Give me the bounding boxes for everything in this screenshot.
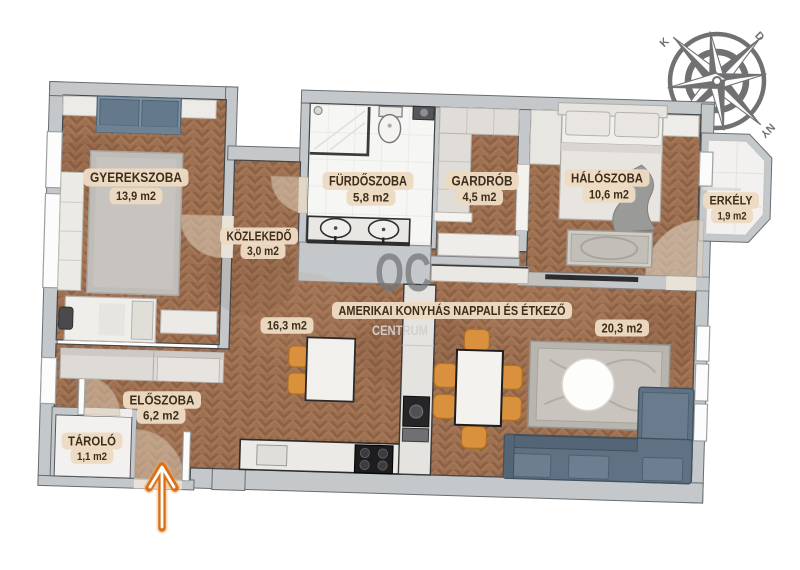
svg-text:OC: OC: [375, 243, 431, 303]
svg-text:13,9 m2: 13,9 m2: [116, 189, 156, 203]
svg-text:20,3 m2: 20,3 m2: [602, 321, 643, 335]
svg-text:ELŐSZOBA: ELŐSZOBA: [130, 393, 196, 408]
svg-text:3,0 m2: 3,0 m2: [247, 246, 279, 258]
svg-text:HÁLÓSZOBA: HÁLÓSZOBA: [571, 171, 644, 186]
svg-text:TÁROLÓ: TÁROLÓ: [68, 433, 116, 448]
svg-text:KÖZLEKEDŐ: KÖZLEKEDŐ: [227, 228, 292, 243]
svg-text:5,8 m2: 5,8 m2: [353, 191, 389, 205]
svg-text:ERKÉLY: ERKÉLY: [710, 193, 753, 208]
svg-text:10,6 m2: 10,6 m2: [589, 188, 629, 202]
svg-text:GYEREKSZOBA: GYEREKSZOBA: [90, 170, 182, 185]
svg-text:CENTRUM: CENTRUM: [372, 323, 428, 338]
svg-text:GARDRÓB: GARDRÓB: [452, 174, 513, 189]
svg-text:1,1 m2: 1,1 m2: [77, 451, 107, 463]
svg-text:16,3 m2: 16,3 m2: [267, 319, 307, 333]
svg-text:FÜRDŐSZOBA: FÜRDŐSZOBA: [329, 174, 407, 189]
svg-text:D: D: [752, 30, 766, 44]
svg-text:AMERIKAI KONYHÁS NAPPALI ÉS ÉT: AMERIKAI KONYHÁS NAPPALI ÉS ÉTKEZŐ: [339, 303, 566, 318]
svg-text:1,9 m2: 1,9 m2: [718, 210, 747, 222]
svg-text:K: K: [658, 36, 672, 50]
svg-text:4,5 m2: 4,5 m2: [463, 190, 497, 204]
svg-text:6,2 m2: 6,2 m2: [143, 409, 179, 423]
